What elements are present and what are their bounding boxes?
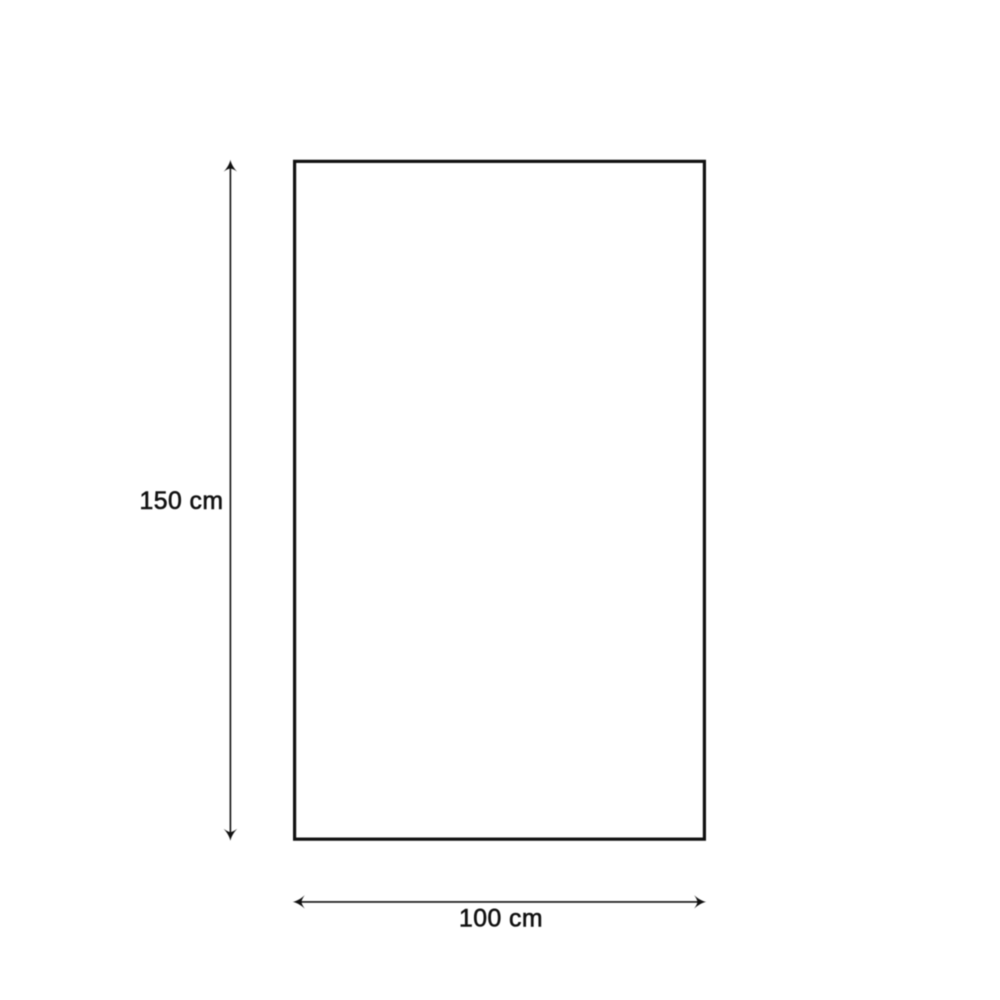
- svg-text:100 cm: 100 cm: [459, 906, 543, 933]
- svg-text:150 cm: 150 cm: [139, 488, 223, 515]
